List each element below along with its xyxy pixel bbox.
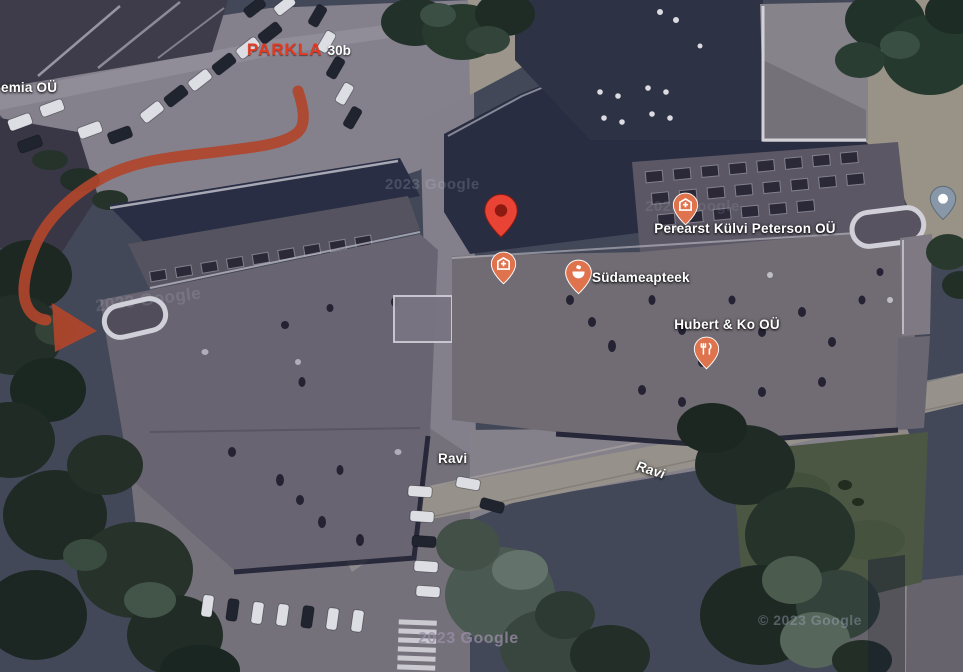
poi-label-perearst[interactable]: Perearst Külvi Peterson OÜ: [654, 221, 836, 236]
poi-pin-clinic[interactable]: [490, 251, 517, 285]
parkla-text: PARKLA: [247, 40, 323, 60]
dot-icon: [938, 194, 948, 204]
map-viewport[interactable]: 2023 Google 2023 Google 2023 Google 2023…: [0, 0, 963, 672]
poi-label-restaurant[interactable]: Hubert & Ko OÜ: [674, 317, 780, 332]
business-label-partial[interactable]: emia OÜ: [1, 80, 57, 95]
generic-poi-pin[interactable]: [929, 185, 957, 221]
destination-pin-icon: [483, 193, 519, 239]
street-label-ravi[interactable]: Ravi: [438, 451, 467, 466]
poi-pin-restaurant[interactable]: [693, 336, 720, 370]
building-number-label: 30b: [328, 43, 351, 58]
satellite-imagery: [0, 0, 963, 672]
parking-annotation: PARKLA 30b: [247, 40, 351, 60]
poi-label-pharmacy[interactable]: Südameapteek: [592, 270, 690, 285]
destination-pin[interactable]: [483, 193, 519, 239]
poi-pin-pharmacy[interactable]: [564, 259, 593, 295]
